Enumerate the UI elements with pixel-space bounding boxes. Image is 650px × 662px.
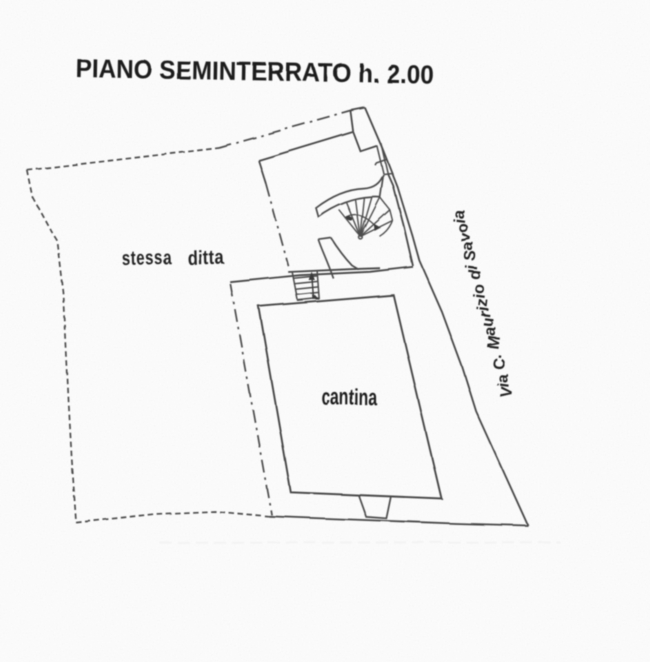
svg-text:stessa: stessa — [122, 246, 172, 270]
svg-text:ditta: ditta — [188, 245, 226, 269]
svg-text:cantina: cantina — [321, 385, 378, 411]
